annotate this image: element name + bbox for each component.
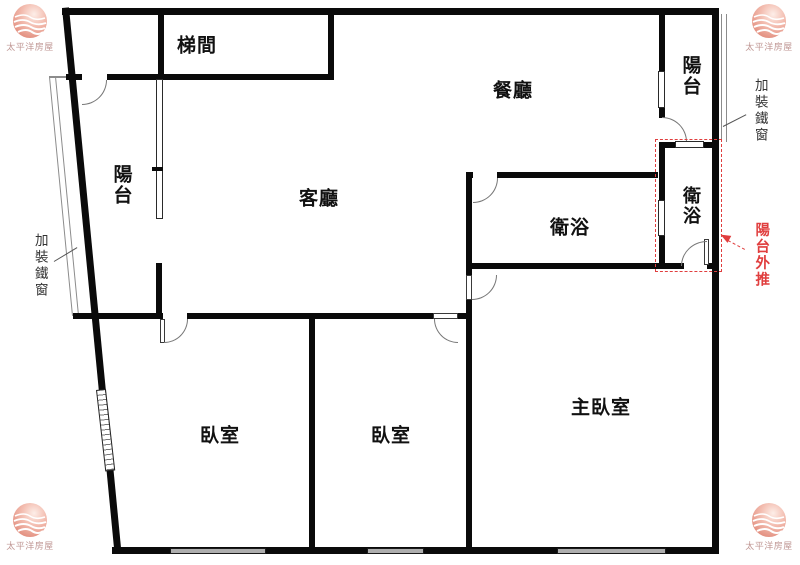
label-balcony-right: 陽台: [681, 55, 700, 97]
label-bedroom-left: 臥室: [200, 421, 240, 448]
pacific-logo-icon: [12, 502, 48, 538]
window-balcony-left: [156, 79, 163, 219]
label-master-bedroom: 主臥室: [571, 393, 631, 420]
label-balcony-left: 陽台: [112, 164, 131, 206]
wall-balcony-stub: [156, 263, 162, 315]
annotation-balcony-pushout: 陽台外推: [754, 222, 769, 288]
window-balcony-divider: [658, 71, 665, 108]
wall-bath-bottom: [466, 263, 684, 269]
brand-logo-text: 太平洋房屋: [2, 539, 58, 552]
label-bedroom-center: 臥室: [371, 421, 411, 448]
label-dining: 餐廳: [493, 76, 533, 103]
wall-bath-top: [497, 172, 658, 178]
balcony-pushout-arrow-line: [728, 240, 745, 250]
iron-window-right-strip: [721, 14, 727, 142]
door-arc-entry: [82, 80, 107, 105]
window-bottom-1: [170, 548, 266, 554]
wall-right: [712, 8, 719, 554]
label-stairwell: 梯間: [177, 31, 217, 58]
wall-bedroom-divider-1: [309, 313, 315, 547]
label-bath-left: 衛浴: [550, 213, 590, 240]
brand-logo-text: 太平洋房屋: [741, 539, 797, 552]
door-arc-bedroom-center: [434, 319, 458, 343]
door-arc-master: [472, 275, 497, 300]
wall-stairwell-left: [158, 15, 164, 74]
label-bath-right: 衛浴: [681, 186, 699, 226]
wall-bedrooms-top-1: [73, 313, 163, 319]
floor-plan-canvas: 梯間 餐廳 客廳 陽台 陽台 衛浴 衛浴 臥室 臥室 主臥室 加裝鐵窗 加裝鐵窗…: [0, 0, 800, 565]
label-living: 客廳: [299, 184, 339, 211]
wall-stairwell-right: [328, 15, 334, 74]
brand-logo-bottom-left: 太平洋房屋: [2, 502, 58, 552]
annotation-iron-window-right: 加裝鐵窗: [752, 78, 766, 144]
door-arc-bedroom-left: [164, 319, 188, 343]
wall-balcony-divider-1: [659, 15, 665, 71]
pacific-logo-icon: [751, 502, 787, 538]
wall-bath-top-stub: [466, 172, 473, 178]
window-slanted-hatched: [96, 389, 115, 472]
wall-bedroom-divider-2: [466, 300, 472, 547]
wall-stairwell-bottom: [107, 74, 334, 80]
window-mullion: [152, 167, 163, 171]
annotation-iron-window-left: 加裝鐵窗: [32, 233, 46, 299]
pacific-logo-icon: [12, 3, 48, 39]
wall-stairwell-bottom-stub: [66, 74, 82, 80]
brand-logo-text: 太平洋房屋: [2, 40, 58, 53]
wall-top: [62, 8, 719, 15]
wall-bath-west: [466, 172, 472, 275]
window-bottom-2: [367, 548, 424, 554]
door-arc-bath-left: [473, 178, 498, 203]
brand-logo-text: 太平洋房屋: [741, 40, 797, 53]
brand-logo-top-right: 太平洋房屋: [741, 3, 797, 53]
brand-logo-bottom-right: 太平洋房屋: [741, 502, 797, 552]
pacific-logo-icon: [751, 3, 787, 39]
window-bottom-3: [557, 548, 666, 554]
brand-logo-top-left: 太平洋房屋: [2, 3, 58, 53]
